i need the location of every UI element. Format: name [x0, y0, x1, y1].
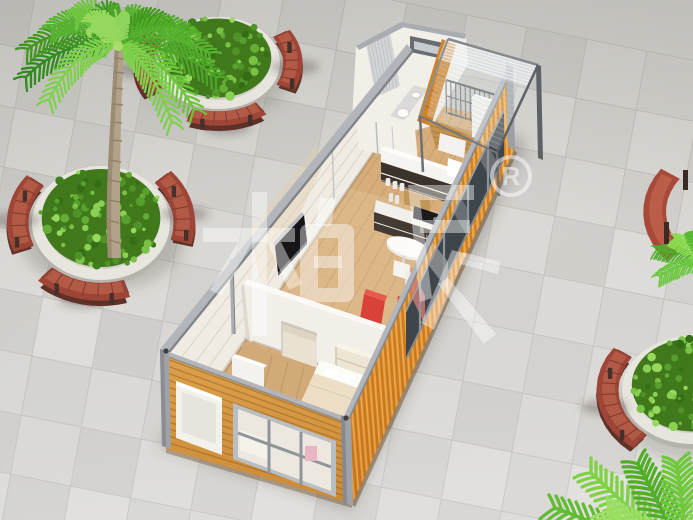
svg-text:R: R: [502, 161, 521, 191]
